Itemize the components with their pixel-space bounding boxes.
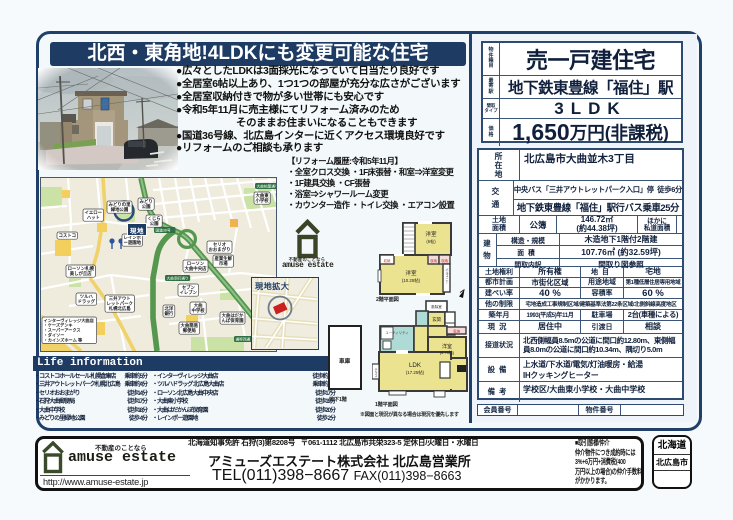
- svg-text:(6.75帖): (6.75帖): [440, 349, 455, 355]
- svg-text:バルコニー: バルコニー: [444, 268, 448, 284]
- svg-text:公園: 公園: [150, 220, 159, 227]
- svg-text:・カインズホーム 等: ・カインズホーム 等: [44, 336, 83, 343]
- svg-text:(10.25帖): (10.25帖): [402, 277, 421, 284]
- svg-text:美しが丘店: 美しが丘店: [70, 270, 93, 277]
- svg-text:郵便局: 郵便局: [183, 327, 197, 334]
- svg-text:イレブン: イレブン: [180, 289, 198, 296]
- svg-text:小学校: 小学校: [256, 197, 270, 204]
- svg-text:緑地公園: 緑地公園: [111, 206, 129, 213]
- svg-text:収納: 収納: [441, 258, 448, 263]
- svg-text:収納: 収納: [384, 258, 391, 263]
- svg-text:ドラッグ: ドラッグ: [78, 298, 96, 305]
- svg-text:おおまがり: おおまがり: [209, 246, 231, 253]
- svg-text:公園: 公園: [142, 203, 151, 210]
- svg-text:ハット: ハット: [87, 215, 100, 220]
- svg-text:洋室: 洋室: [442, 343, 452, 350]
- svg-text:(6帖): (6帖): [426, 238, 436, 245]
- svg-text:収納: 収納: [430, 258, 437, 263]
- svg-text:中学校: 中学校: [192, 307, 206, 314]
- svg-text:大曲柏葉通り: 大曲柏葉通り: [257, 184, 277, 189]
- svg-text:銀行: 銀行: [165, 310, 174, 317]
- svg-text:洋室: 洋室: [425, 230, 437, 238]
- svg-text:国道36号: 国道36号: [156, 228, 171, 233]
- svg-text:市場: 市場: [219, 260, 228, 267]
- svg-text:札幌北広島: 札幌北広島: [108, 305, 132, 312]
- svg-text:LDK: LDK: [409, 362, 422, 369]
- svg-text:収納: 収納: [453, 329, 461, 334]
- svg-text:(17.25帖): (17.25帖): [406, 369, 425, 376]
- svg-text:洋室: 洋室: [405, 269, 417, 277]
- svg-text:玄関: 玄関: [432, 316, 441, 323]
- svg-text:大曲中央店: 大曲中央店: [185, 265, 208, 272]
- svg-text:ー遊園地: ー遊園地: [124, 239, 142, 246]
- svg-text:大曲幸町通り: 大曲幸町通り: [167, 276, 189, 281]
- svg-text:風除室: 風除室: [431, 304, 442, 309]
- svg-text:ユーティリティ: ユーティリティ: [385, 330, 408, 335]
- svg-text:テラス: テラス: [374, 367, 378, 378]
- svg-text:んぼ保育園: んぼ保育園: [222, 317, 245, 324]
